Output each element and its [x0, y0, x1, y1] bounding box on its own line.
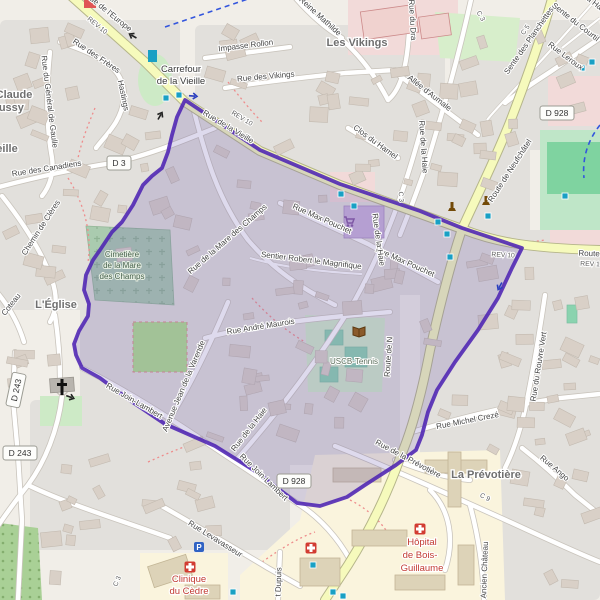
p: [353, 327, 365, 337]
building: [529, 402, 544, 410]
library-icon: [353, 327, 365, 337]
building: [480, 120, 494, 137]
parking-icon: P: [194, 542, 204, 552]
traffic-signal-icon: [351, 203, 357, 209]
building: [517, 417, 535, 427]
tennis-court: [567, 305, 577, 323]
traffic-signal-icon: [176, 92, 182, 98]
traffic-signal-icon: [562, 193, 568, 199]
area-label: USCB-Tennis: [330, 357, 378, 366]
traffic-signal-icon: [485, 213, 491, 219]
building: [393, 130, 408, 141]
building: [61, 464, 72, 474]
traffic-signal-icon: [310, 562, 316, 568]
building: [458, 545, 474, 585]
road-shield: D 3: [107, 156, 131, 170]
bus-stop-icon: [148, 50, 157, 62]
area-label: Hôpital: [407, 537, 437, 548]
building: [525, 267, 534, 280]
building: [507, 396, 525, 412]
building: [47, 354, 61, 366]
building: [40, 531, 62, 548]
traffic-signal-icon: [230, 589, 236, 595]
building: [459, 81, 478, 97]
building: [63, 189, 78, 196]
hospital-icon: [306, 543, 317, 554]
place-label: L'Église: [35, 298, 77, 311]
sports-field: [547, 142, 600, 194]
p: P: [196, 543, 202, 552]
place-label: Carrefour: [161, 64, 201, 75]
building: [52, 245, 66, 254]
building: [65, 86, 79, 100]
building: [561, 579, 578, 588]
place-label: eille: [0, 143, 18, 155]
building: [145, 131, 161, 140]
shield-text: D 928: [546, 108, 569, 118]
building: [509, 119, 518, 128]
area-label: Clinique: [172, 574, 206, 585]
road-shield: D 243: [3, 446, 37, 460]
shield-text: D 3: [112, 158, 126, 168]
building: [552, 300, 563, 311]
building: [79, 519, 100, 530]
hospital-icon: [415, 524, 426, 535]
traffic-signal-icon: [340, 593, 346, 599]
building: [300, 558, 340, 586]
building: [564, 383, 576, 390]
map-canvas[interactable]: PRue de l'EuropeREV 10Impasse RollonRue …: [0, 0, 600, 600]
place-label: La Prévotière: [451, 469, 521, 481]
building: [309, 107, 328, 123]
street-label: REV 10: [491, 251, 515, 259]
traffic-signal-icon: [447, 254, 453, 260]
building: [395, 575, 445, 590]
place-label: de la Vieille: [157, 76, 205, 87]
area-label: de Bois-: [403, 550, 438, 561]
traffic-signal-icon: [330, 589, 336, 595]
building: [452, 395, 468, 406]
area-label: Guillaume: [401, 563, 444, 574]
area-label: des Champs: [100, 272, 145, 281]
place-label: bussy: [0, 102, 25, 114]
building: [480, 150, 497, 160]
building: [437, 172, 457, 187]
building: [140, 163, 149, 172]
building: [419, 13, 452, 39]
building: [49, 570, 61, 584]
building: [190, 461, 202, 470]
area-label: Cimetière: [105, 250, 140, 259]
traffic-signal-icon: [444, 231, 450, 237]
map-viewport[interactable]: PRue de l'EuropeREV 10Impasse RollonRue …: [0, 0, 600, 600]
building: [66, 535, 76, 546]
building: [30, 27, 50, 44]
building: [118, 205, 127, 213]
traffic-signal-icon: [338, 191, 344, 197]
building: [327, 94, 340, 110]
building: [512, 300, 531, 310]
shield-text: D 243: [9, 448, 32, 458]
road-shield: D 928: [277, 474, 311, 488]
street-label: C 3: [397, 191, 405, 202]
area-label: de la Mare: [103, 261, 141, 270]
traffic-signal-icon: [589, 59, 595, 65]
building: [535, 438, 545, 445]
building: [516, 334, 534, 344]
building: [349, 97, 369, 107]
street-label: REV 1: [580, 261, 600, 269]
street-label: t Dupuis: [273, 567, 283, 597]
road-shield: D 928: [540, 106, 574, 120]
building: [541, 359, 561, 370]
shield-text: D 928: [283, 476, 306, 486]
place-label: Claude: [0, 89, 32, 101]
place-label: Les Vikings: [327, 37, 388, 49]
traffic-signal-icon: [435, 219, 441, 225]
hospital-icon: [185, 562, 196, 573]
street-label: Route: [578, 249, 600, 259]
traffic-signal-icon: [163, 95, 169, 101]
building: [575, 296, 590, 311]
building: [352, 530, 407, 546]
area-label: du Cèdre: [169, 586, 208, 597]
building: [355, 164, 370, 171]
